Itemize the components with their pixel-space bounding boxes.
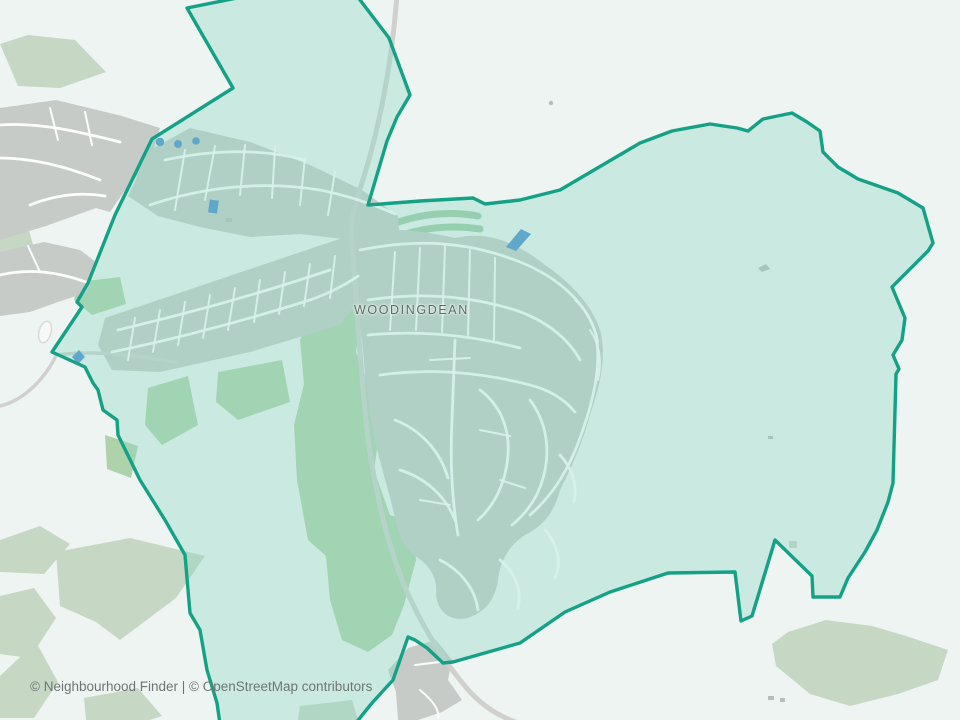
map-dot [780,698,785,702]
place-label: WOODINGDEAN [354,303,469,317]
map-dot [768,696,774,700]
map-canvas[interactable]: WOODINGDEAN © Neighbourhood Finder | © O… [0,0,960,720]
map-dot [549,101,553,105]
map-svg [0,0,960,720]
map-attribution[interactable]: © Neighbourhood Finder | © OpenStreetMap… [30,679,372,694]
